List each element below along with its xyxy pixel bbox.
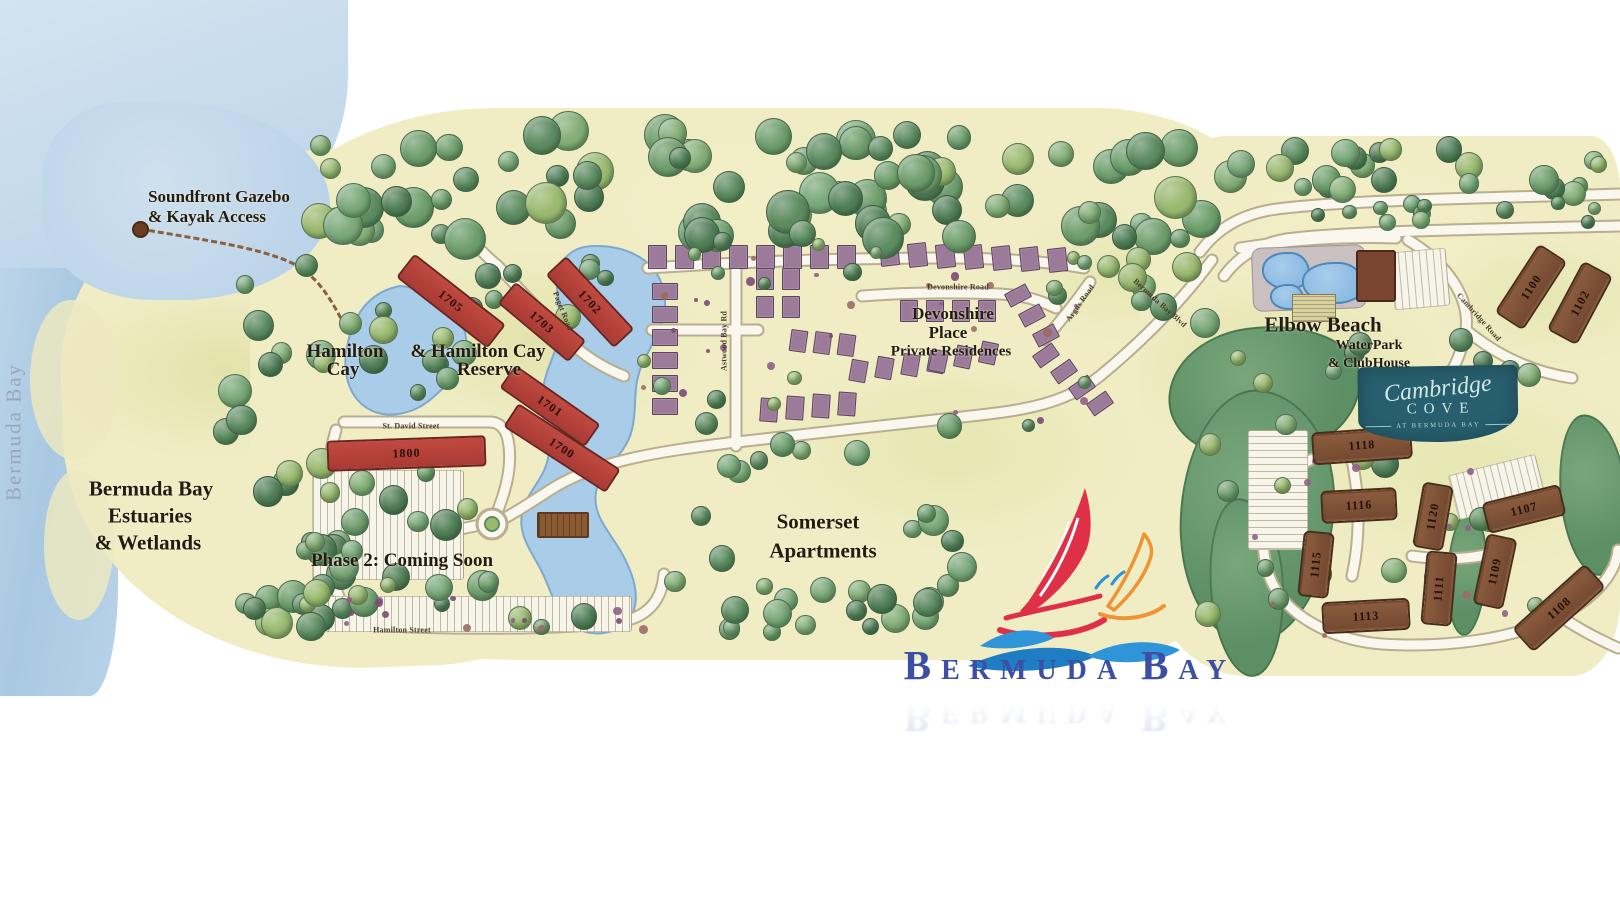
tree — [453, 167, 479, 193]
shrub-dot — [1465, 525, 1471, 531]
tree — [1160, 129, 1198, 167]
bermuda-bay-site-map: 1705170317021701170018001100110211181116… — [0, 0, 1620, 900]
tree — [253, 476, 284, 507]
tree — [1190, 308, 1220, 338]
tree — [839, 126, 873, 160]
tree — [893, 121, 921, 149]
label-phase2-coming-soon: Phase 2: Coming Soon — [311, 550, 493, 572]
townhouse — [1047, 247, 1068, 273]
tree — [937, 413, 963, 439]
townhouse — [785, 395, 805, 420]
tree — [770, 432, 795, 457]
townhouse — [907, 242, 928, 268]
building-label-1100: 1100 — [1517, 271, 1544, 302]
tree — [371, 154, 396, 179]
shrub-dot — [344, 621, 349, 626]
orange-sail — [1108, 534, 1152, 610]
townhouse — [789, 329, 809, 353]
tree — [1266, 154, 1294, 182]
shrub-dot — [1467, 468, 1474, 475]
red-sail — [1020, 488, 1091, 616]
road-label-st-david-street: St. David Street — [382, 422, 439, 431]
tree — [862, 217, 904, 259]
tree — [320, 482, 340, 502]
tree — [763, 599, 792, 628]
clubhouse-building — [1356, 250, 1396, 302]
shrub-dot — [953, 410, 958, 415]
bermuda-bay-logo-text: BERMUDABAY — [810, 641, 1330, 689]
tree — [305, 532, 325, 552]
tree — [573, 161, 601, 189]
tree — [597, 270, 613, 286]
tree — [410, 384, 426, 400]
townhouse — [652, 398, 678, 415]
tree — [1170, 229, 1190, 249]
tree — [523, 116, 561, 154]
tree — [243, 597, 266, 620]
tree — [1275, 414, 1297, 436]
tree — [525, 182, 567, 224]
tree — [707, 390, 726, 409]
tree — [750, 451, 769, 470]
tree — [669, 147, 690, 168]
building-1800: 1800 — [326, 435, 486, 472]
tree — [457, 498, 478, 519]
shrub-dot — [1043, 328, 1052, 337]
building-1116: 1116 — [1322, 489, 1395, 522]
building-label-1111: 1111 — [1430, 574, 1447, 601]
tree — [218, 374, 252, 408]
shrub-dot — [639, 625, 648, 634]
tree — [1253, 373, 1274, 394]
shrub-dot — [613, 607, 621, 615]
townhouse — [991, 245, 1012, 271]
tree — [806, 133, 842, 169]
shrub-dot — [616, 618, 622, 624]
tree — [1459, 173, 1480, 194]
shrub-dot — [847, 301, 854, 308]
wave-tick — [1096, 576, 1108, 588]
bay-watermark-text: Bermuda Bay — [2, 363, 27, 501]
label-estuaries-line1: Bermuda Bay — [89, 477, 213, 502]
townhouse — [783, 245, 802, 269]
tree — [717, 454, 741, 478]
building-label-1705: 1705 — [435, 286, 466, 315]
tree — [1048, 141, 1074, 167]
tree — [1379, 214, 1396, 231]
label-soundfront-line2: & Kayak Access — [148, 207, 266, 227]
road-label-astwood-bay-rd: Astwood Bay Rd — [720, 311, 729, 371]
building-label-1120: 1120 — [1423, 501, 1443, 531]
townhouse — [782, 296, 800, 318]
tree — [1154, 176, 1197, 219]
tree — [475, 263, 501, 289]
tree — [942, 220, 976, 254]
cambridge-cove-logo: Cambridge COVE AT BERMUDA BAY — [1357, 365, 1518, 444]
tree — [1379, 138, 1401, 160]
building-label-1116: 1116 — [1345, 497, 1372, 513]
tree — [947, 125, 971, 149]
tree — [1342, 205, 1356, 219]
label-elbow-beach-line1: Elbow Beach — [1264, 313, 1381, 338]
shrub-dot — [704, 300, 710, 306]
soundfront-gazebo — [132, 221, 149, 238]
building-label-1118: 1118 — [1348, 437, 1376, 454]
rule-right — [1486, 424, 1512, 425]
tree — [1381, 558, 1406, 583]
label-devonshire-line2: Place — [929, 323, 968, 343]
tree — [1199, 433, 1222, 456]
tree — [1126, 132, 1164, 170]
road-label-devonshire-road: Devonshire Road — [927, 283, 989, 292]
tree — [1551, 196, 1564, 209]
tree — [844, 440, 870, 466]
townhouse — [652, 352, 678, 369]
tree — [897, 154, 935, 192]
tree — [985, 194, 1009, 218]
tree — [226, 405, 257, 436]
tree — [787, 371, 801, 385]
label-estuaries-line2: Estuaries — [108, 504, 192, 529]
label-soundfront-line1: Soundfront Gazebo — [148, 187, 290, 207]
tree — [767, 397, 781, 411]
shrub-dot — [346, 597, 352, 603]
tree — [1097, 255, 1120, 278]
label-somerset-line1: Somerset — [777, 510, 860, 535]
tree — [571, 603, 598, 630]
townhouse — [837, 333, 857, 357]
townhouse — [1019, 246, 1040, 272]
tree — [1517, 363, 1541, 387]
tree — [1078, 376, 1091, 389]
tree — [843, 263, 861, 281]
tree — [498, 151, 519, 172]
tree — [336, 183, 371, 218]
tree — [756, 578, 772, 594]
tree — [795, 615, 815, 635]
tree — [828, 181, 863, 216]
tree — [1046, 280, 1063, 297]
tree — [691, 506, 711, 526]
tree — [1449, 328, 1472, 351]
building-label-1107: 1107 — [1509, 498, 1539, 519]
label-devonshire-line3: Private Residences — [891, 344, 1011, 361]
building-1113: 1113 — [1323, 600, 1408, 632]
label-estuaries-line3: & Wetlands — [95, 531, 201, 556]
tree — [1581, 215, 1595, 229]
tree — [711, 266, 725, 280]
townhouse — [782, 268, 800, 290]
wooden-bridge — [537, 512, 589, 538]
red-boom — [1006, 596, 1100, 618]
tree — [758, 277, 771, 290]
shrub-dot — [971, 326, 977, 332]
tree — [1496, 201, 1514, 219]
tree — [436, 367, 459, 390]
shrub-dot — [1080, 397, 1088, 405]
bermuda-bay-logo-reflection: BERMUDABAY — [810, 694, 1330, 742]
tree — [407, 511, 429, 533]
tree — [1412, 211, 1430, 229]
label-devonshire-line1: Devonshire — [912, 304, 994, 324]
shrub-dot — [1502, 610, 1508, 616]
shrub-dot — [767, 362, 775, 370]
shrub-dot — [450, 596, 456, 602]
road-label-hamilton-street: Hamilton Street — [373, 626, 431, 635]
label-elbow-beach-line2: WaterPark — [1336, 338, 1403, 354]
shrub-dot — [1462, 591, 1470, 599]
building-label-1113: 1113 — [1352, 608, 1379, 624]
cambridge-cove-script: Cambridge — [1383, 371, 1493, 406]
shrub-dot — [746, 277, 755, 286]
tree — [868, 136, 893, 161]
townhouse — [648, 245, 667, 269]
townhouse — [756, 296, 774, 318]
tree — [1329, 176, 1356, 203]
building-label-1800: 1800 — [392, 445, 421, 461]
tree — [713, 232, 732, 251]
tree — [341, 508, 369, 536]
building-label-1102: 1102 — [1567, 287, 1593, 318]
tree — [1294, 178, 1312, 196]
tree — [1373, 201, 1387, 215]
label-hamilton-cay-line2: Cay — [327, 359, 360, 381]
townhouse — [652, 306, 678, 323]
tree — [379, 485, 408, 514]
tree — [425, 574, 452, 601]
tree — [755, 118, 792, 155]
building-label-1700: 1700 — [546, 434, 578, 462]
parking-lot — [1390, 248, 1451, 311]
tree — [349, 470, 375, 496]
tree — [400, 130, 436, 166]
townhouse — [729, 245, 748, 269]
townhouse — [756, 245, 775, 269]
tree — [1112, 224, 1137, 249]
tree — [664, 571, 685, 592]
tree — [381, 186, 412, 217]
townhouse — [837, 391, 857, 416]
tree — [1172, 252, 1202, 282]
label-hamilton-reserve-line2: Reserve — [457, 359, 521, 381]
tree — [713, 171, 746, 204]
tree — [435, 134, 462, 161]
townhouse — [811, 393, 831, 418]
tree — [1371, 167, 1397, 193]
shrub-dot — [538, 625, 545, 632]
shrub-dot — [1271, 602, 1276, 607]
tree — [1529, 165, 1558, 194]
tree — [1022, 419, 1035, 432]
shrub-dot — [511, 618, 515, 622]
tree — [870, 246, 883, 259]
building-label-1109: 1109 — [1485, 556, 1505, 586]
tree — [1331, 139, 1359, 167]
cambridge-cove-subtitle: AT BERMUDA BAY — [1365, 421, 1511, 431]
building-label-1115: 1115 — [1307, 550, 1325, 578]
rule-left — [1365, 426, 1391, 427]
shrub-dot — [1352, 464, 1359, 471]
